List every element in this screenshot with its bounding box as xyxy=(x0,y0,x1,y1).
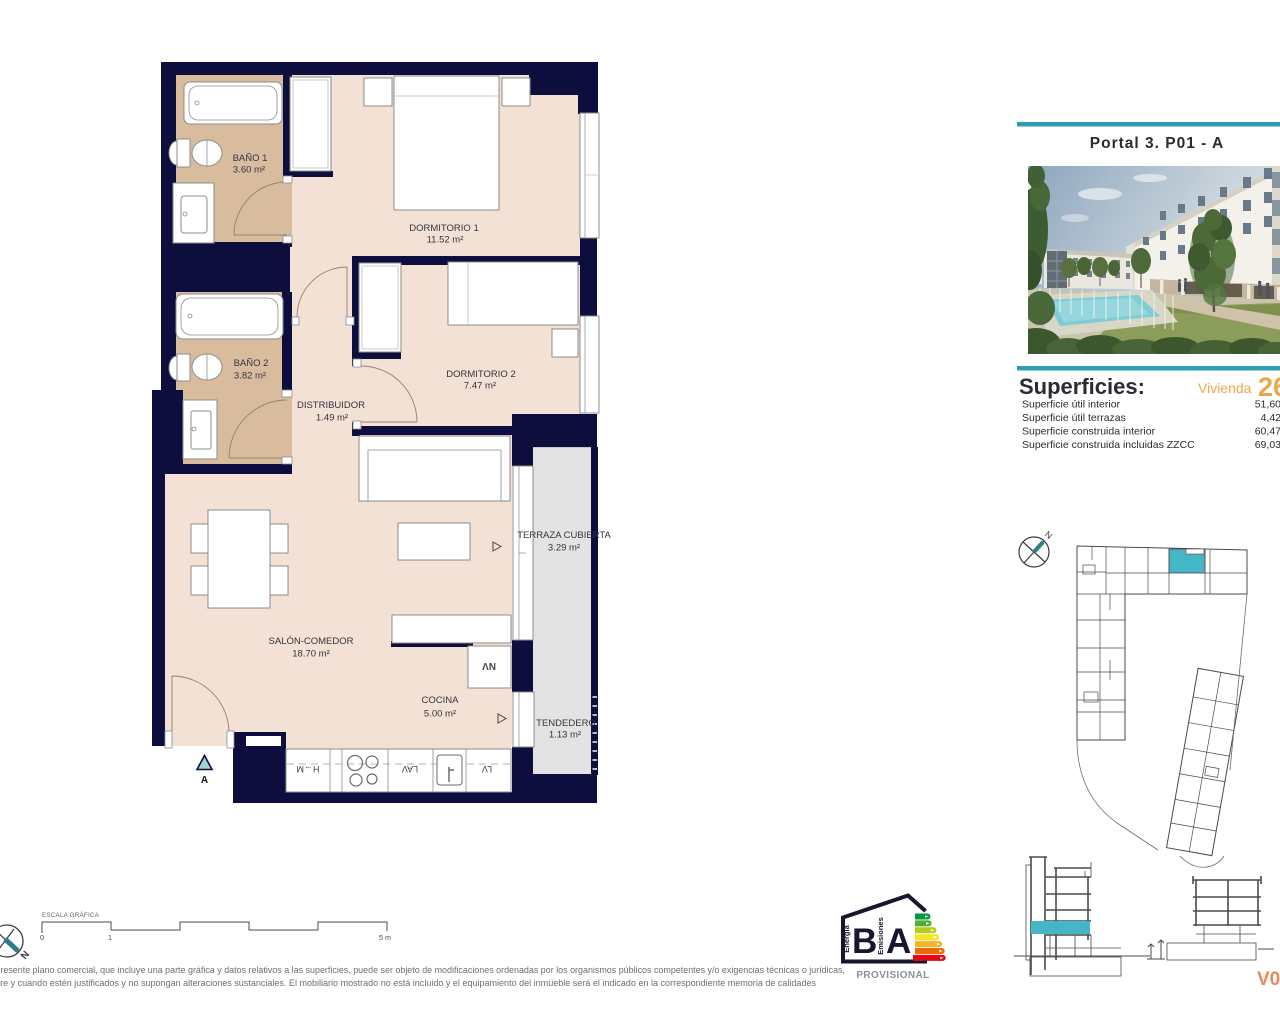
svg-text:3.60 m²: 3.60 m² xyxy=(233,165,265,176)
svg-text:V0: V0 xyxy=(1257,969,1280,990)
svg-text:51,60: 51,60 xyxy=(1255,399,1280,411)
svg-text:H→M: H→M xyxy=(297,764,320,774)
svg-text:1.49 m²: 1.49 m² xyxy=(316,413,348,424)
svg-text:DORMITORIO 1: DORMITORIO 1 xyxy=(409,223,479,234)
svg-text:A: A xyxy=(201,775,208,786)
svg-text:NV: NV xyxy=(482,660,496,671)
svg-text:1: 1 xyxy=(108,933,112,942)
svg-text:3.29 m²: 3.29 m² xyxy=(548,543,580,554)
svg-text:DISTRIBUIDOR: DISTRIBUIDOR xyxy=(297,400,365,411)
svg-text:siempre y cuando estén justifi: siempre y cuando estén justificados y no… xyxy=(0,978,817,988)
svg-text:11.52 m²: 11.52 m² xyxy=(427,235,464,246)
svg-text:0: 0 xyxy=(40,933,44,942)
svg-text:El presente plano comercial, q: El presente plano comercial, que incluye… xyxy=(0,965,845,975)
svg-text:SALÓN-COMEDOR: SALÓN-COMEDOR xyxy=(269,636,354,647)
svg-text:Superficie construida incluida: Superficie construida incluidas ZZCC xyxy=(1022,439,1195,451)
svg-text:5 m: 5 m xyxy=(379,933,391,942)
svg-text:4,42: 4,42 xyxy=(1261,412,1280,424)
svg-text:LV: LV xyxy=(482,764,492,774)
svg-text:ESCALA GRÁFICA: ESCALA GRÁFICA xyxy=(42,910,100,919)
svg-text:7.47 m²: 7.47 m² xyxy=(464,381,496,392)
svg-text:3.82 m²: 3.82 m² xyxy=(234,371,266,382)
svg-text:18.70 m²: 18.70 m² xyxy=(292,649,330,660)
svg-text:5.00 m²: 5.00 m² xyxy=(424,709,456,720)
svg-text:69,03: 69,03 xyxy=(1255,439,1280,451)
svg-text:LAV: LAV xyxy=(402,764,418,774)
svg-text:BAÑO 1: BAÑO 1 xyxy=(233,153,268,164)
svg-text:Vivienda: Vivienda xyxy=(1198,380,1252,396)
svg-text:Superficie construida interior: Superficie construida interior xyxy=(1022,426,1156,438)
svg-text:PROVISIONAL: PROVISIONAL xyxy=(856,970,929,981)
svg-text:Energía: Energía xyxy=(842,924,851,952)
svg-text:Superficies:: Superficies: xyxy=(1019,374,1145,399)
svg-text:A: A xyxy=(886,922,911,961)
svg-text:BAÑO 2: BAÑO 2 xyxy=(234,358,269,369)
svg-text:1.13 m²: 1.13 m² xyxy=(549,730,581,741)
svg-text:Portal 3. P01 - A: Portal 3. P01 - A xyxy=(1090,135,1224,152)
svg-text:Emisiones: Emisiones xyxy=(876,917,885,955)
svg-text:DORMITORIO 2: DORMITORIO 2 xyxy=(446,369,516,380)
svg-text:COCINA: COCINA xyxy=(422,695,460,706)
svg-text:Superficie útil interior: Superficie útil interior xyxy=(1022,399,1121,411)
svg-text:TENDEDERO: TENDEDERO xyxy=(536,718,596,729)
svg-text:Superficie útil terrazas: Superficie útil terrazas xyxy=(1022,412,1126,424)
svg-text:26: 26 xyxy=(1258,372,1280,402)
svg-text:60,47: 60,47 xyxy=(1255,426,1280,438)
svg-text:B: B xyxy=(852,922,877,961)
svg-text:TERRAZA CUBIERTA: TERRAZA CUBIERTA xyxy=(517,530,611,541)
